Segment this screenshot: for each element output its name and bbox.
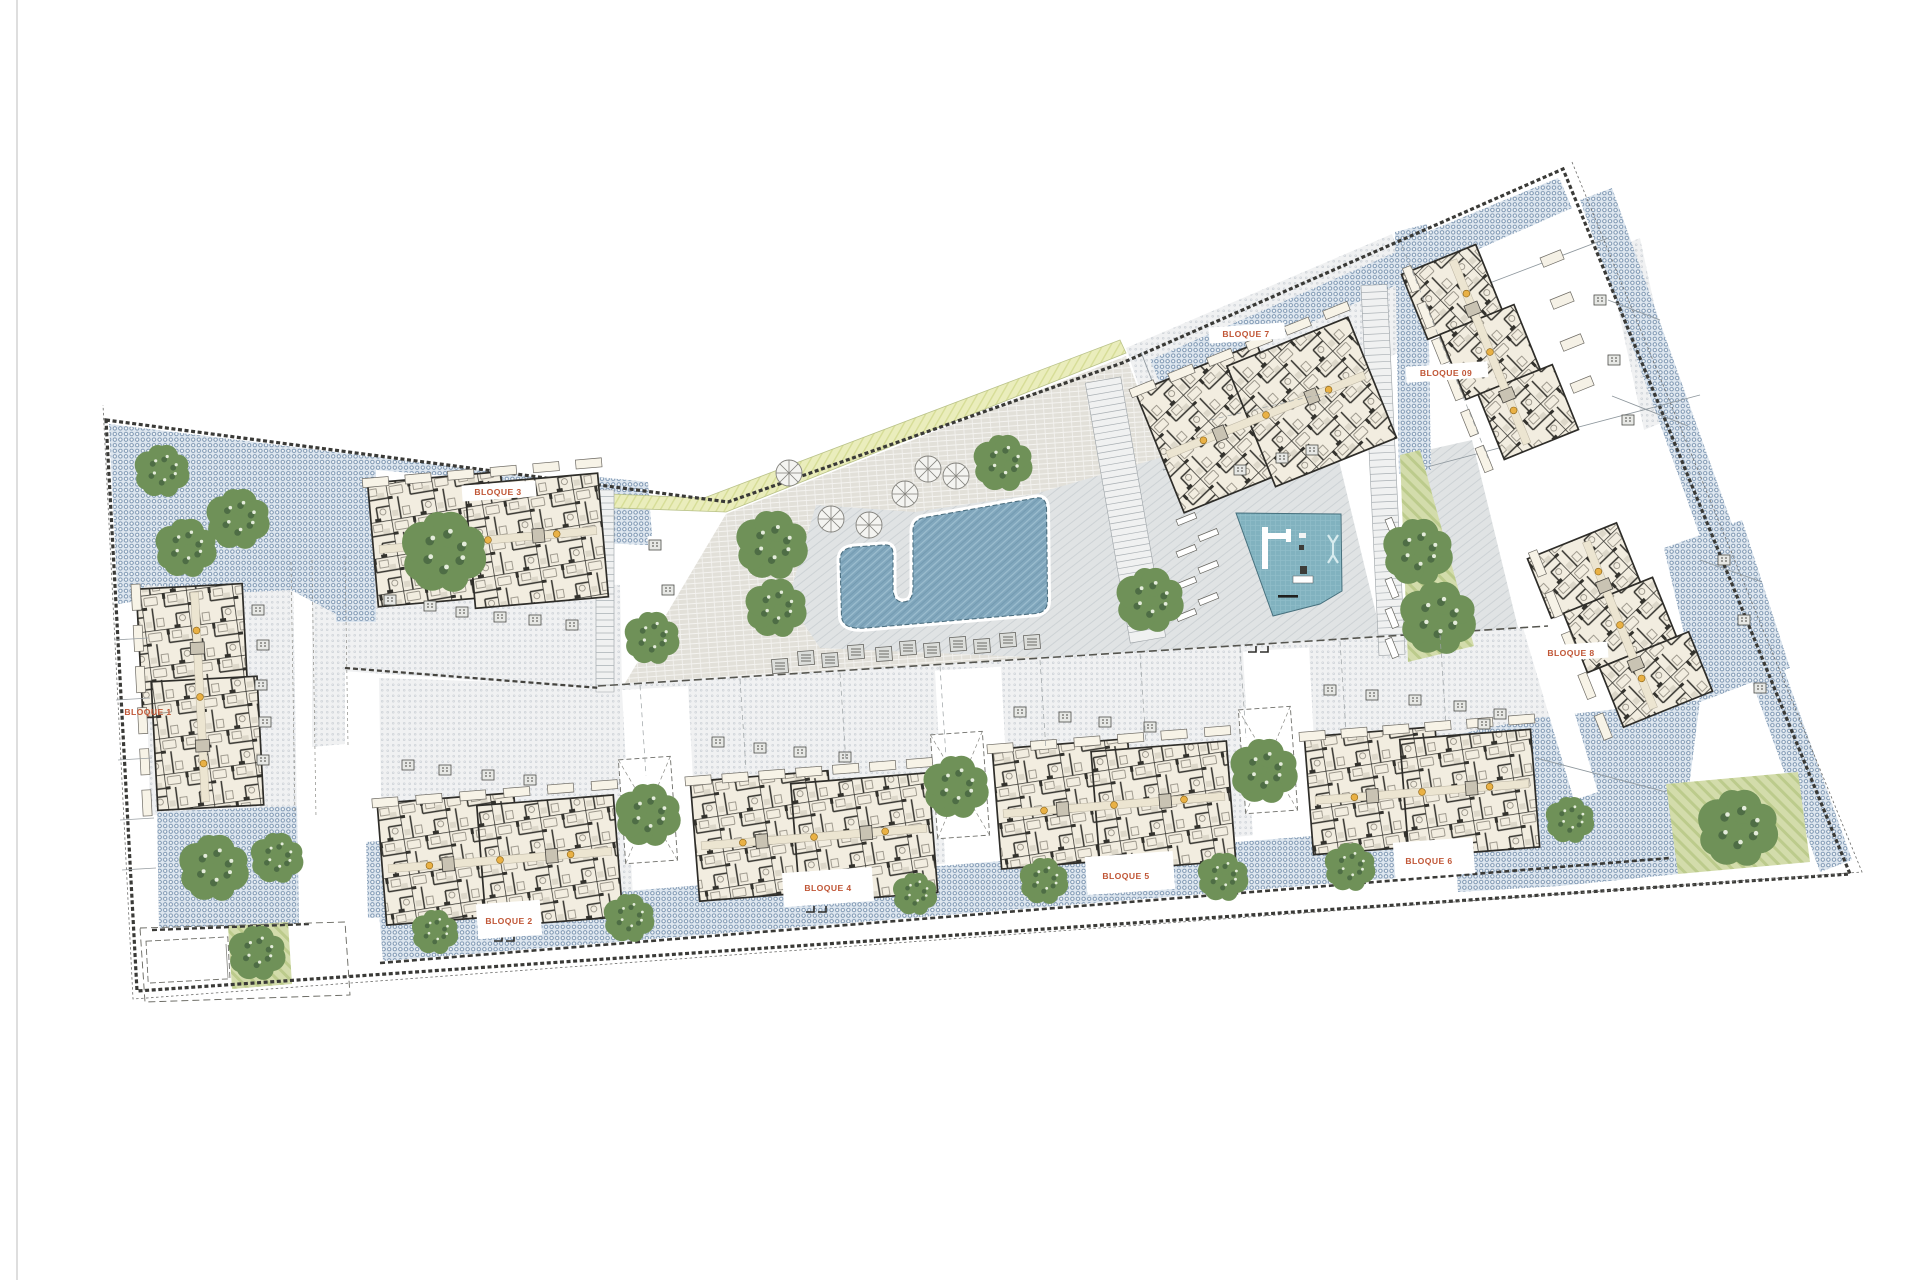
svg-text:BLOQUE 8: BLOQUE 8: [1547, 648, 1594, 658]
svg-text:BLOQUE 2: BLOQUE 2: [485, 916, 532, 926]
svg-text:BLOQUE 6: BLOQUE 6: [1405, 856, 1452, 866]
svg-text:BLOQUE 09: BLOQUE 09: [1420, 368, 1472, 378]
svg-text:BLOQUE 5: BLOQUE 5: [1102, 871, 1149, 881]
svg-text:BLOQUE 1: BLOQUE 1: [124, 707, 171, 717]
svg-text:BLOQUE 4: BLOQUE 4: [804, 883, 851, 893]
svg-text:BLOQUE 7: BLOQUE 7: [1222, 329, 1269, 339]
svg-text:BLOQUE 3: BLOQUE 3: [474, 487, 521, 497]
